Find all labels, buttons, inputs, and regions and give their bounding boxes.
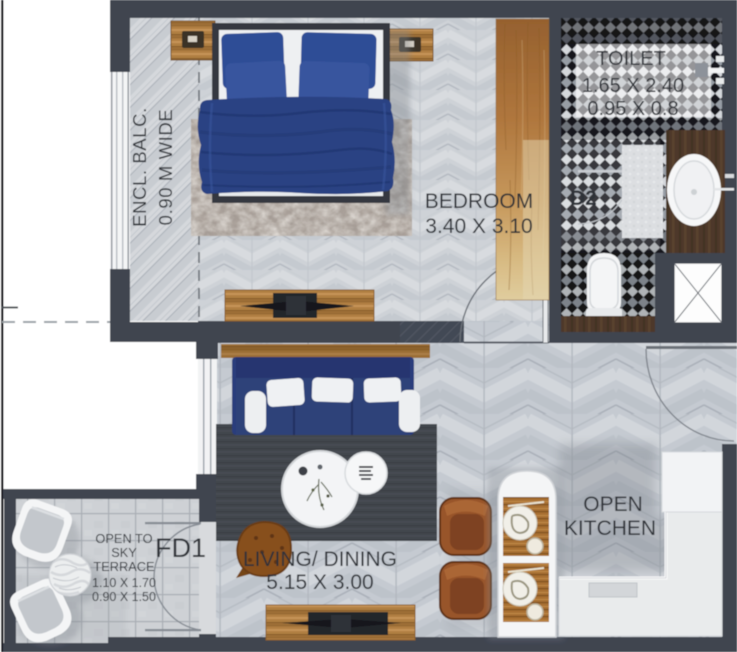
svg-text:5.15 X 3.00: 5.15 X 3.00 bbox=[266, 571, 373, 594]
svg-text:LIVING/ DINING: LIVING/ DINING bbox=[243, 548, 397, 571]
svg-text:SKY: SKY bbox=[111, 545, 137, 560]
svg-text:FD1: FD1 bbox=[155, 533, 206, 563]
svg-text:0.90 M WIDE: 0.90 M WIDE bbox=[155, 109, 176, 226]
svg-text:D2: D2 bbox=[570, 187, 597, 210]
svg-text:3.40 X 3.10: 3.40 X 3.10 bbox=[425, 215, 532, 238]
svg-text:OPEN: OPEN bbox=[583, 493, 643, 516]
svg-text:1.65 X 2.40: 1.65 X 2.40 bbox=[582, 75, 684, 97]
svg-text:ENCL. BALC.: ENCL. BALC. bbox=[129, 107, 150, 227]
svg-text:1.10 X 1.70: 1.10 X 1.70 bbox=[92, 576, 156, 590]
svg-text:BEDROOM: BEDROOM bbox=[425, 190, 534, 213]
svg-text:KITCHEN: KITCHEN bbox=[564, 517, 656, 540]
svg-text:0.90 X 1.50: 0.90 X 1.50 bbox=[92, 590, 156, 604]
svg-text:0.95 X 0.8: 0.95 X 0.8 bbox=[587, 98, 678, 120]
svg-text:TERRACE: TERRACE bbox=[93, 559, 154, 574]
svg-text:TOILET: TOILET bbox=[596, 48, 666, 70]
svg-text:OPEN TO: OPEN TO bbox=[95, 531, 152, 546]
